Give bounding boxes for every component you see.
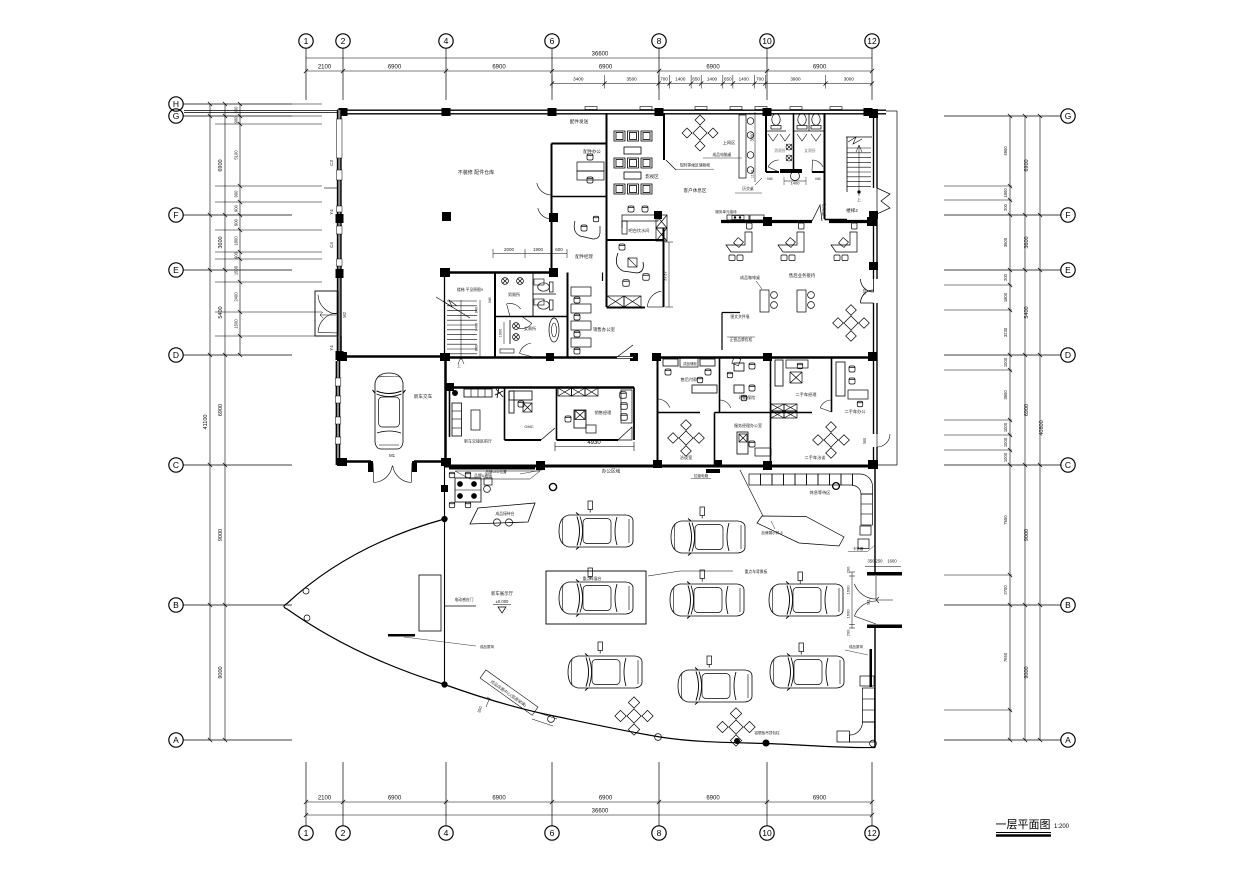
svg-text:A: A: [173, 735, 179, 745]
svg-text:640: 640: [475, 307, 479, 313]
svg-text:上网区: 上网区: [723, 139, 736, 146]
svg-text:成品电脑桌: 成品电脑桌: [713, 152, 732, 157]
svg-text:正营品牌优柜: 正营品牌优柜: [730, 337, 753, 342]
svg-text:8: 8: [657, 36, 662, 46]
svg-text:6900: 6900: [813, 796, 827, 802]
svg-text:1000: 1000: [1003, 437, 1008, 447]
svg-text:不装修 配件仓库: 不装修 配件仓库: [458, 169, 494, 176]
svg-text:1800: 1800: [1003, 188, 1008, 198]
svg-text:G: G: [173, 111, 180, 121]
svg-text:1400: 1400: [707, 77, 718, 82]
svg-text:36600: 36600: [592, 809, 609, 815]
svg-text:楼梯 平见原图9: 楼梯 平见原图9: [457, 287, 483, 292]
svg-text:销售经理: 销售经理: [595, 409, 613, 416]
svg-text:M1: M1: [389, 453, 396, 458]
svg-text:M3: M3: [862, 288, 867, 294]
svg-text:41100: 41100: [203, 415, 209, 430]
svg-text:300: 300: [234, 106, 239, 114]
svg-text:±0.000: ±0.000: [496, 599, 509, 604]
svg-text:6900: 6900: [813, 65, 827, 71]
svg-text:3900: 3900: [1003, 390, 1008, 400]
svg-text:1400: 1400: [475, 323, 479, 331]
svg-text:3800: 3800: [750, 132, 755, 142]
svg-text:6900: 6900: [218, 159, 224, 171]
svg-text:拉缝电箱: 拉缝电箱: [694, 473, 709, 478]
svg-text:1100: 1100: [751, 170, 755, 178]
svg-text:D: D: [1065, 350, 1071, 360]
svg-text:6900: 6900: [599, 796, 613, 802]
svg-text:9000: 9000: [218, 666, 224, 678]
svg-text:成品屏风: 成品屏风: [849, 644, 864, 649]
svg-text:8: 8: [657, 828, 662, 838]
svg-text:900: 900: [234, 190, 239, 198]
svg-text:1000: 1000: [1003, 357, 1008, 367]
svg-text:1:200: 1:200: [1054, 824, 1070, 830]
svg-text:上: 上: [857, 196, 861, 202]
svg-text:1400: 1400: [739, 77, 750, 82]
svg-text:1500: 1500: [234, 265, 239, 275]
svg-text:洽谈室: 洽谈室: [680, 454, 693, 461]
svg-text:7650: 7650: [1003, 515, 1008, 525]
svg-text:1800: 1800: [1003, 292, 1008, 302]
svg-text:10: 10: [762, 828, 772, 838]
svg-text:7650: 7650: [1003, 652, 1008, 662]
svg-text:6900: 6900: [388, 65, 402, 71]
svg-text:9000: 9000: [1024, 529, 1030, 541]
svg-text:M1: M1: [866, 598, 871, 604]
svg-text:200: 200: [846, 629, 851, 636]
svg-text:E: E: [1065, 265, 1071, 275]
svg-text:6900: 6900: [599, 65, 613, 71]
svg-text:配件办公: 配件办公: [583, 148, 601, 155]
svg-text:900: 900: [234, 218, 239, 226]
svg-text:650: 650: [724, 77, 732, 82]
svg-text:1: 1: [304, 828, 309, 838]
svg-text:4: 4: [444, 36, 449, 46]
svg-text:6900: 6900: [218, 404, 224, 416]
svg-text:1600: 1600: [846, 609, 851, 619]
svg-text:Y4: Y4: [329, 209, 334, 215]
svg-text:40800: 40800: [1039, 420, 1045, 435]
svg-text:9000: 9000: [218, 529, 224, 541]
svg-text:新车展示厅: 新车展示厅: [491, 590, 514, 597]
svg-text:E: E: [173, 265, 179, 275]
svg-text:1400: 1400: [675, 77, 686, 82]
svg-text:9000: 9000: [1024, 666, 1030, 678]
svg-text:服务单元接待: 服务单元接待: [715, 209, 737, 214]
svg-text:900: 900: [234, 116, 239, 124]
svg-text:二手车办公: 二手车办公: [845, 408, 867, 415]
svg-text:3400: 3400: [573, 77, 584, 82]
svg-text:700: 700: [756, 77, 764, 82]
svg-text:6900: 6900: [1024, 404, 1030, 416]
svg-text:3600: 3600: [218, 236, 224, 248]
svg-text:4930: 4930: [587, 440, 601, 446]
svg-text:[四折门]: [四折门]: [821, 204, 826, 216]
svg-text:规时等候区储物柜: 规时等候区储物柜: [680, 163, 711, 168]
svg-text:成品屏风: 成品屏风: [480, 644, 495, 649]
svg-text:1600: 1600: [846, 585, 851, 595]
svg-text:860: 860: [475, 345, 479, 351]
svg-text:6900: 6900: [706, 65, 720, 71]
svg-text:成品储柜: 成品储柜: [683, 361, 697, 366]
svg-text:1600: 1600: [887, 559, 897, 564]
svg-text:200: 200: [1003, 203, 1008, 211]
svg-text:电动感应门: 电动感应门: [455, 597, 474, 602]
svg-text:3500: 3500: [626, 77, 637, 82]
svg-text:理赔保险: 理赔保险: [739, 394, 757, 401]
svg-text:配件发送: 配件发送: [570, 118, 589, 125]
svg-text:6: 6: [550, 36, 555, 46]
svg-text:M6: M6: [767, 177, 772, 181]
svg-text:销售办公室: 销售办公室: [593, 326, 616, 333]
svg-text:6900: 6900: [706, 796, 720, 802]
svg-text:5100: 5100: [234, 150, 239, 160]
svg-text:4: 4: [444, 828, 449, 838]
svg-text:2: 2: [341, 36, 346, 46]
svg-text:2100: 2100: [318, 65, 332, 71]
svg-text:M4: M4: [862, 437, 867, 443]
svg-text:售后业务接待: 售后业务接待: [789, 272, 816, 279]
svg-text:品牌展示斜-5: 品牌展示斜-5: [761, 530, 782, 535]
svg-text:12: 12: [867, 828, 877, 838]
svg-text:650: 650: [692, 77, 700, 82]
svg-text:3230: 3230: [1003, 327, 1008, 337]
svg-text:1800: 1800: [234, 236, 239, 246]
svg-text:服务经理办公室: 服务经理办公室: [734, 422, 762, 428]
svg-text:品牌LED位置: 品牌LED位置: [485, 469, 507, 474]
svg-text:200: 200: [1003, 273, 1008, 281]
svg-text:900: 900: [234, 204, 239, 212]
svg-text:1000: 1000: [1003, 422, 1008, 432]
svg-text:C4: C4: [329, 242, 334, 248]
svg-text:6900: 6900: [388, 796, 402, 802]
svg-text:2: 2: [341, 828, 346, 838]
svg-text:6900: 6900: [1024, 159, 1030, 171]
svg-text:900: 900: [234, 251, 239, 259]
svg-text:售后付款: 售后付款: [681, 376, 699, 383]
svg-text:二手车洽谈: 二手车洽谈: [805, 454, 827, 461]
svg-text:2400: 2400: [234, 292, 239, 302]
svg-text:1500: 1500: [234, 319, 239, 329]
svg-text:36600: 36600: [592, 52, 609, 58]
svg-text:成品咖啡桌: 成品咖啡桌: [740, 274, 760, 280]
svg-text:Y4: Y4: [329, 345, 334, 351]
svg-text:GMC: GMC: [524, 424, 533, 429]
svg-text:1: 1: [304, 36, 309, 46]
svg-text:F: F: [173, 210, 178, 220]
svg-text:图文关怀墙: 图文关怀墙: [731, 314, 750, 319]
svg-text:5400: 5400: [218, 306, 224, 318]
svg-text:3737: 3737: [663, 270, 668, 281]
svg-text:男厕所: 男厕所: [508, 291, 520, 297]
svg-text:6900: 6900: [492, 796, 506, 802]
svg-text:5400: 5400: [1024, 306, 1030, 318]
svg-text:1400: 1400: [791, 181, 801, 186]
svg-text:250: 250: [876, 559, 884, 564]
svg-text:历交桌: 历交桌: [742, 186, 754, 191]
svg-text:楼梯2: 楼梯2: [846, 207, 858, 214]
svg-text:铝塑板吊顶包柱: 铝塑板吊顶包柱: [754, 730, 780, 735]
svg-text:1900: 1900: [533, 247, 544, 252]
svg-text:F: F: [1065, 210, 1070, 220]
svg-text:6900: 6900: [492, 65, 506, 71]
svg-text:D: D: [173, 350, 179, 360]
svg-text:2000: 2000: [504, 247, 515, 252]
svg-text:新车交车: 新车交车: [414, 393, 433, 400]
svg-text:1600: 1600: [499, 329, 503, 337]
svg-text:1000: 1000: [1003, 452, 1008, 462]
svg-text:上: 上: [457, 362, 461, 368]
svg-text:A: A: [1065, 735, 1071, 745]
svg-text:4900: 4900: [1003, 146, 1008, 156]
svg-text:M2: M2: [342, 311, 347, 317]
svg-text:成品接待台: 成品接待台: [496, 511, 515, 516]
svg-text:3900: 3900: [790, 77, 801, 82]
svg-text:G: G: [1065, 111, 1072, 121]
svg-text:办公区域: 办公区域: [602, 468, 621, 475]
svg-text:12: 12: [867, 36, 877, 46]
svg-text:二手车经理: 二手车经理: [796, 391, 818, 398]
svg-text:10: 10: [762, 36, 772, 46]
svg-text:6: 6: [550, 828, 555, 838]
svg-text:女厕所: 女厕所: [804, 148, 816, 153]
svg-text:3600: 3600: [1024, 236, 1030, 248]
svg-text:M6: M6: [815, 177, 820, 181]
svg-text:影视区: 影视区: [645, 173, 659, 180]
svg-text:C: C: [173, 460, 179, 470]
svg-text:新车交接区前厅: 新车交接区前厅: [464, 438, 492, 444]
svg-text:3000: 3000: [844, 77, 855, 82]
svg-text:C: C: [1065, 460, 1071, 470]
svg-text:客户休息区: 客户休息区: [684, 187, 707, 194]
svg-text:女厕所: 女厕所: [524, 325, 536, 331]
svg-text:2700: 2700: [1003, 585, 1008, 595]
svg-text:600: 600: [555, 247, 563, 252]
svg-text:M6: M6: [488, 297, 492, 302]
svg-text:配件经理: 配件经理: [575, 253, 593, 260]
svg-text:吧台饮水间: 吧台饮水间: [629, 227, 650, 234]
svg-text:3600: 3600: [1003, 237, 1008, 247]
svg-text:重点车背景板: 重点车背景板: [745, 569, 768, 574]
svg-text:B: B: [173, 600, 179, 610]
svg-text:一层平面图: 一层平面图: [996, 818, 1051, 831]
svg-text:350: 350: [868, 559, 876, 564]
svg-text:B: B: [1065, 600, 1071, 610]
svg-text:700: 700: [660, 77, 668, 82]
svg-text:2100: 2100: [318, 796, 332, 802]
svg-text:H: H: [173, 99, 179, 109]
svg-text:C3: C3: [329, 160, 334, 166]
svg-text:休息等待区: 休息等待区: [810, 489, 831, 496]
svg-text:男厕所: 男厕所: [774, 148, 786, 153]
